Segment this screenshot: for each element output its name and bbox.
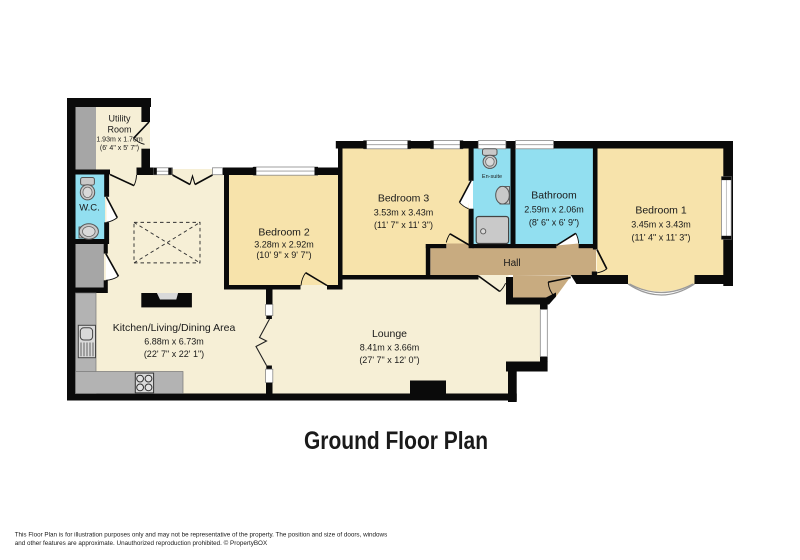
svg-text:W.C.: W.C.	[79, 203, 100, 214]
svg-text:(11' 7" x 11' 3"): (11' 7" x 11' 3")	[374, 220, 433, 230]
svg-text:Ground Floor Plan: Ground Floor Plan	[304, 427, 488, 455]
svg-text:(8' 6" x 6' 9"): (8' 6" x 6' 9")	[529, 218, 579, 228]
svg-text:3.53m x 3.43m: 3.53m x 3.43m	[374, 208, 434, 218]
svg-text:8.41m x 3.66m: 8.41m x 3.66m	[360, 343, 420, 353]
svg-text:3.45m x 3.43m: 3.45m x 3.43m	[631, 220, 691, 230]
svg-text:Bathroom: Bathroom	[531, 190, 577, 202]
svg-text:2.59m x 2.06m: 2.59m x 2.06m	[524, 205, 584, 215]
svg-text:Lounge: Lounge	[372, 328, 407, 340]
svg-text:Bedroom 3: Bedroom 3	[378, 193, 430, 205]
svg-text:This Floor Plan is for illustr: This Floor Plan is for illustration purp…	[15, 532, 388, 539]
svg-text:Kitchen/Living/Dining Area: Kitchen/Living/Dining Area	[113, 322, 236, 334]
svg-text:Bedroom 2: Bedroom 2	[258, 227, 310, 239]
svg-text:(6' 4" x 5' 7"): (6' 4" x 5' 7")	[100, 145, 139, 152]
svg-text:Bedroom 1: Bedroom 1	[635, 205, 687, 217]
svg-text:1.93m x 1.70m: 1.93m x 1.70m	[96, 137, 142, 144]
svg-text:and other features are approxi: and other features are approximate. Unau…	[15, 539, 268, 547]
svg-text:Hall: Hall	[503, 258, 520, 269]
svg-text:(27' 7" x 12' 0"): (27' 7" x 12' 0")	[359, 355, 419, 365]
svg-text:3.28m x 2.92m: 3.28m x 2.92m	[254, 240, 314, 250]
svg-text:6.88m x 6.73m: 6.88m x 6.73m	[144, 337, 204, 347]
svg-text:Utility: Utility	[109, 114, 131, 124]
svg-text:Room: Room	[107, 125, 131, 135]
svg-text:(10' 9" x 9' 7"): (10' 9" x 9' 7")	[256, 250, 311, 260]
svg-text:En-suite: En-suite	[482, 174, 502, 180]
svg-text:(22' 7" x 22' 1"): (22' 7" x 22' 1")	[144, 349, 204, 359]
svg-text:(11' 4" x 11' 3"): (11' 4" x 11' 3")	[631, 233, 690, 243]
